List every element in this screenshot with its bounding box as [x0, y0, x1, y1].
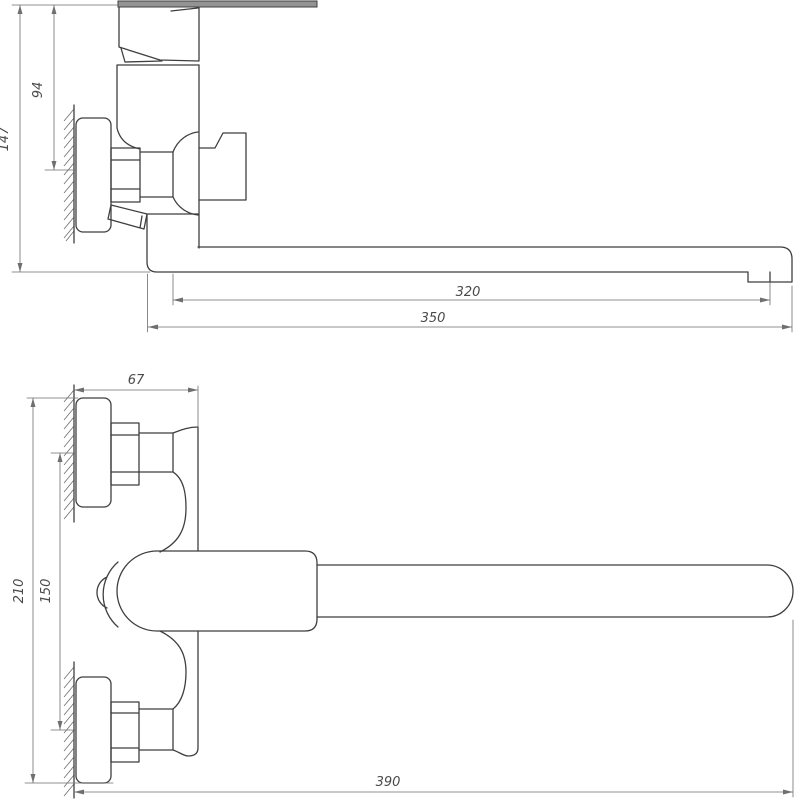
- escutcheon-front-top: [76, 398, 111, 507]
- wall-hatching: [64, 109, 74, 241]
- handle-detail-lines: [121, 8, 198, 62]
- side-view: 147 94 320 350: [0, 1, 792, 332]
- dim-overall-height-147: 147: [0, 5, 150, 272]
- inlet-nut-front-bottom: [111, 702, 139, 762]
- dim-label-top-to-inlet: 94: [31, 82, 46, 99]
- wall-section-side: [64, 105, 74, 243]
- dim-label-escutcheon-span: 210: [12, 579, 27, 604]
- front-view: 67 210 150 390: [12, 373, 793, 798]
- dim-overall-length-390: 390: [74, 620, 793, 797]
- handle-front: [97, 551, 317, 631]
- wall-section-front-top: [64, 385, 74, 522]
- handle-body: [119, 2, 199, 61]
- dim-reach-aerator-320: 320: [173, 274, 770, 305]
- dim-label-overall-height: 147: [0, 126, 12, 152]
- dim-reach-overall-350: 350: [148, 274, 793, 332]
- dim-label-wall-to-front: 67: [128, 373, 145, 388]
- inlet-nut-front-top: [111, 423, 139, 485]
- body-lower-fillet: [173, 197, 198, 215]
- handle-side: [118, 1, 317, 62]
- escutcheon-front-bottom: [76, 677, 111, 783]
- dim-label-overall-length: 390: [376, 775, 401, 790]
- diverter-boss: [199, 133, 246, 200]
- handle-capsule: [117, 551, 317, 631]
- dim-top-to-inlet-94: 94: [31, 5, 76, 170]
- body-front-face-lower: [173, 631, 198, 756]
- body-top-flare: [173, 427, 198, 433]
- escutcheon-side: [76, 118, 111, 232]
- dim-label-reach-aerator: 320: [456, 285, 481, 300]
- inlet-pipe-front-bottom: [139, 709, 173, 750]
- faucet-technical-drawing: 147 94 320 350: [0, 0, 800, 800]
- spout-connector: [147, 214, 198, 248]
- body-shoulder-fillet: [173, 132, 198, 152]
- dim-label-reach-overall: 350: [421, 311, 446, 326]
- handle-lever: [118, 1, 317, 7]
- handle-tip-arcs: [97, 562, 118, 627]
- inlet-pipe-front-top: [139, 433, 173, 472]
- inlet-nut-side: [111, 148, 140, 202]
- body-waist-upper: [160, 472, 186, 552]
- check-valve-wedge: [108, 205, 147, 229]
- drawing-canvas: 147 94 320 350: [0, 0, 800, 800]
- inlet-pipe-side: [140, 152, 173, 197]
- spout-side: [147, 247, 792, 282]
- dim-escutcheon-span-210: 210: [12, 398, 113, 783]
- dim-wall-to-front-67: 67: [74, 373, 198, 427]
- body-waist-lower: [160, 631, 186, 709]
- spout-front: [317, 565, 793, 617]
- dim-label-inlet-centers: 150: [39, 579, 54, 604]
- dim-inlet-centers-150: 150: [39, 453, 76, 730]
